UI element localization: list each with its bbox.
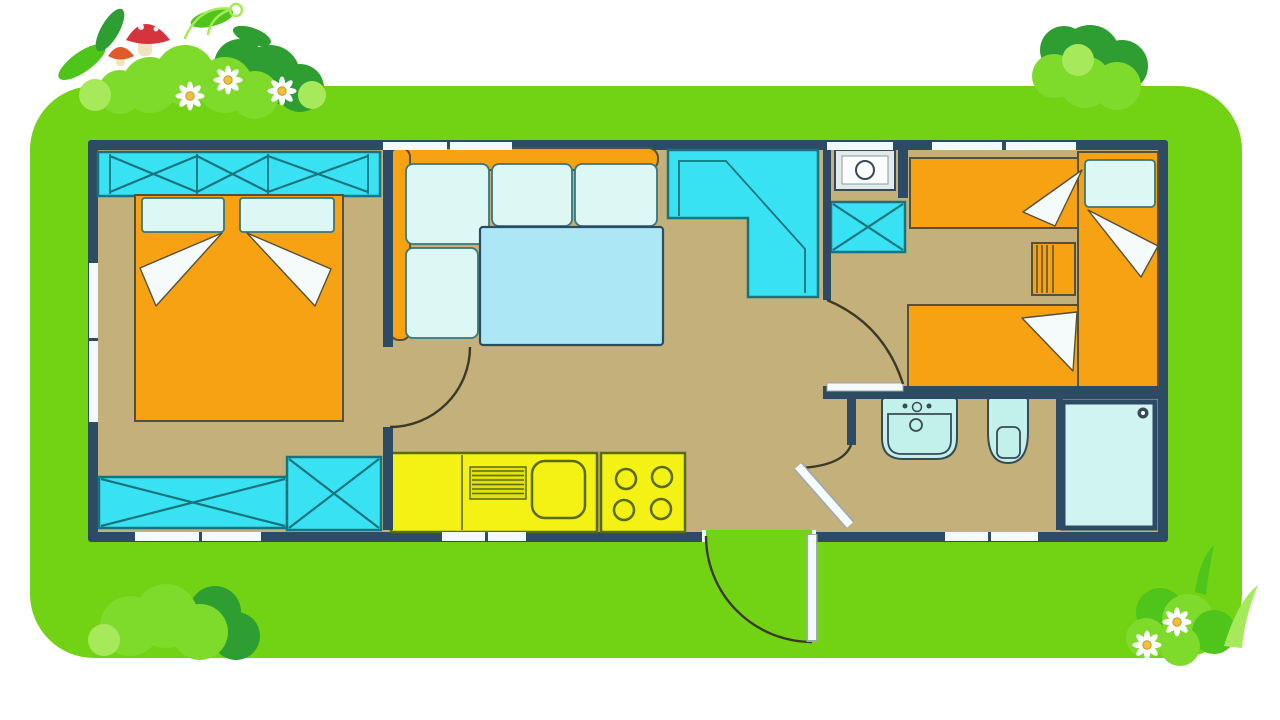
drainer (470, 467, 526, 499)
utility-nook (831, 150, 905, 252)
faucet-handle-icon (927, 404, 932, 409)
daisy-flower-icon (176, 82, 205, 111)
kitchen (391, 453, 685, 532)
scene (0, 0, 1280, 720)
sofa-cushion (406, 164, 489, 244)
bush-top-right (1032, 25, 1148, 110)
window (442, 532, 485, 541)
sofa-cushion (406, 248, 478, 338)
daisy-flower-icon (1163, 608, 1192, 637)
window (450, 142, 512, 150)
dining-table (480, 227, 663, 345)
toilet (988, 398, 1028, 463)
faucet-handle-icon (903, 404, 908, 409)
window (991, 532, 1038, 541)
window (1006, 142, 1076, 150)
entrance-opening (706, 530, 812, 542)
nightstand (1032, 243, 1075, 295)
window (932, 142, 1002, 150)
pillow (142, 198, 224, 232)
daisy-flower-icon (1133, 631, 1162, 660)
window (89, 341, 98, 422)
window (135, 532, 199, 541)
daisy-flower-icon (268, 77, 297, 106)
stove-four-burners (601, 453, 685, 532)
water-heater (835, 150, 895, 190)
illustration-stage (0, 0, 1280, 720)
window (945, 532, 988, 541)
pillow (1085, 160, 1155, 207)
window (89, 263, 98, 338)
door-leaf (827, 383, 903, 391)
sofa-cushion (575, 164, 657, 226)
mushroom-icon (126, 24, 170, 56)
bathroom-sink (882, 398, 957, 459)
shower-tray (1063, 402, 1155, 528)
kitchen-sink (532, 461, 585, 518)
under-window-storage (99, 477, 287, 528)
mushroom-icon (108, 47, 134, 66)
sofa-cushion (492, 164, 572, 226)
window (827, 142, 893, 150)
wardrobe-crossed (98, 152, 380, 196)
window (202, 532, 261, 541)
bush-top-left (53, 4, 326, 119)
window (488, 532, 526, 541)
daisy-flower-icon (214, 66, 243, 95)
window (383, 142, 447, 150)
crossed-cabinet (831, 202, 905, 252)
storage-box (287, 457, 381, 530)
pillow (240, 198, 334, 232)
